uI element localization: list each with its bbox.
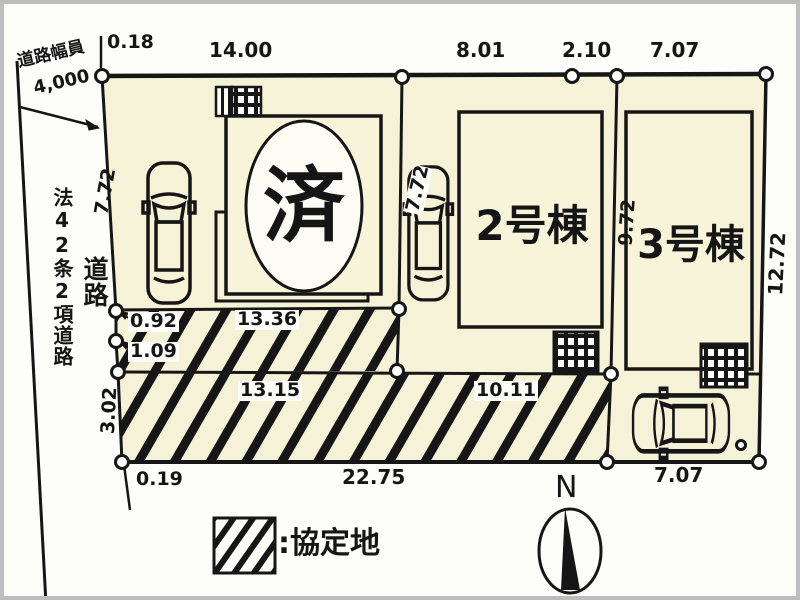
dim-top-14-00: 14.00 <box>209 40 272 61</box>
dim-strip-13-36: 13.36 <box>235 310 299 330</box>
grid-block-lot1 <box>216 87 261 116</box>
legend-label: :協定地 <box>278 528 380 560</box>
dim-bottom-0-19: 0.19 <box>136 470 183 490</box>
dim-left-3-02: 3.02 <box>99 389 121 434</box>
dim-top-2-10: 2.10 <box>562 40 611 61</box>
road-label: 道路 <box>76 256 112 308</box>
dim-strip-10-11: 10.11 <box>474 381 538 401</box>
compass <box>539 508 601 593</box>
building3-label: 3号棟 <box>616 212 766 270</box>
dim-bottom-7-07: 7.07 <box>654 465 703 486</box>
site-plan-page: 道路幅員 4,000 法42条2項道路 道路 0.18 14.00 8.01 2… <box>0 0 800 600</box>
dim-right-12-72: 12.72 <box>765 241 789 296</box>
site-plan-drawing <box>4 4 800 600</box>
dim-left-1-09: 1.09 <box>128 342 179 362</box>
grid-block-lot2 <box>554 332 598 371</box>
building1-sold-sticker: 済 <box>260 161 348 253</box>
dim-left-0-92: 0.92 <box>128 312 179 332</box>
dim-top-7-07: 7.07 <box>650 40 699 61</box>
dim-top-8-01: 8.01 <box>456 40 505 61</box>
road-width-arrow <box>20 107 98 127</box>
dim-top-0-18: 0.18 <box>107 33 154 53</box>
point-dot <box>737 441 746 450</box>
dim-bottom-22-75: 22.75 <box>342 467 405 488</box>
building2-label: 2号棟 <box>454 192 610 253</box>
legend-swatch <box>214 518 275 573</box>
compass-needle <box>561 508 580 590</box>
compass-north-label: N <box>555 472 577 504</box>
road-law-label: 法42条2項道路 <box>48 187 77 367</box>
dim-strip-13-15: 13.15 <box>238 381 302 401</box>
